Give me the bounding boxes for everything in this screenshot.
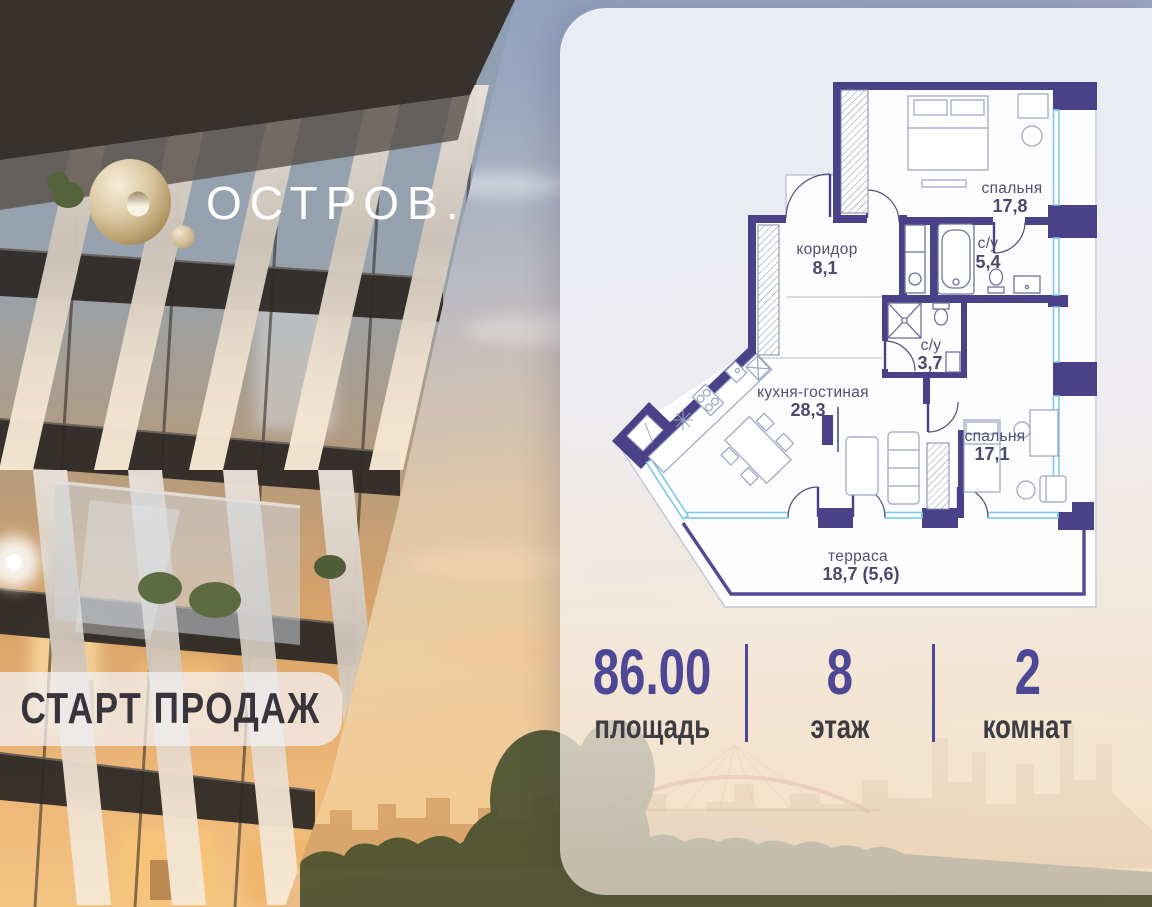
room-label-bath-2: с/у bbox=[921, 337, 942, 354]
room-label-bedroom-2: спальня bbox=[965, 428, 1026, 445]
room-label-corridor: коридор bbox=[796, 241, 857, 258]
stat-rooms-value: 2 bbox=[1015, 640, 1041, 704]
stat-area-value: 86.00 bbox=[593, 640, 712, 704]
sales-badge-label: СТАРТ ПРОДАЖ bbox=[21, 684, 321, 734]
room-label-terrace: терраса bbox=[828, 548, 888, 565]
room-label-bath-1: с/у bbox=[978, 235, 999, 252]
room-area-bath-2: 3,7 bbox=[917, 353, 942, 373]
floor-plan: спальня 17,8 с/у 5,4 коридор 8,1 с/у 3,7… bbox=[600, 66, 1120, 626]
room-area-terrace: 18,7 (5,6) bbox=[822, 564, 899, 584]
promo-banner: ОСТРОВ. СТАРТ ПРОДАЖ bbox=[0, 0, 1152, 907]
room-area-bedroom-1: 17,8 bbox=[992, 196, 1027, 216]
room-area-corridor: 8,1 bbox=[812, 258, 837, 278]
stats-row: 86.00 площадь 8 этаж 2 комнат bbox=[560, 640, 1120, 760]
stat-floor-label: этаж bbox=[810, 710, 869, 744]
logo: ОСТРОВ. bbox=[86, 156, 506, 252]
room-area-kitchen: 28,3 bbox=[790, 400, 825, 420]
stat-floor-value: 8 bbox=[827, 640, 853, 704]
stat-area-label: площадь bbox=[594, 710, 710, 744]
logo-wordmark: ОСТРОВ. bbox=[206, 176, 466, 230]
room-label-kitchen: кухня-гостиная bbox=[757, 384, 869, 401]
room-area-bedroom-2: 17,1 bbox=[974, 444, 1009, 464]
stat-floor: 8 этаж bbox=[748, 640, 933, 760]
room-area-bath-1: 5,4 bbox=[975, 252, 1000, 272]
sales-badge: СТАРТ ПРОДАЖ bbox=[0, 672, 342, 746]
stat-rooms-label: комнат bbox=[983, 710, 1072, 744]
stat-rooms: 2 комнат bbox=[935, 640, 1120, 760]
room-label-bedroom-1: спальня bbox=[982, 180, 1043, 197]
stat-area: 86.00 площадь bbox=[560, 640, 745, 760]
logo-mark-icon bbox=[86, 156, 206, 252]
listing-card: спальня 17,8 с/у 5,4 коридор 8,1 с/у 3,7… bbox=[560, 8, 1152, 895]
